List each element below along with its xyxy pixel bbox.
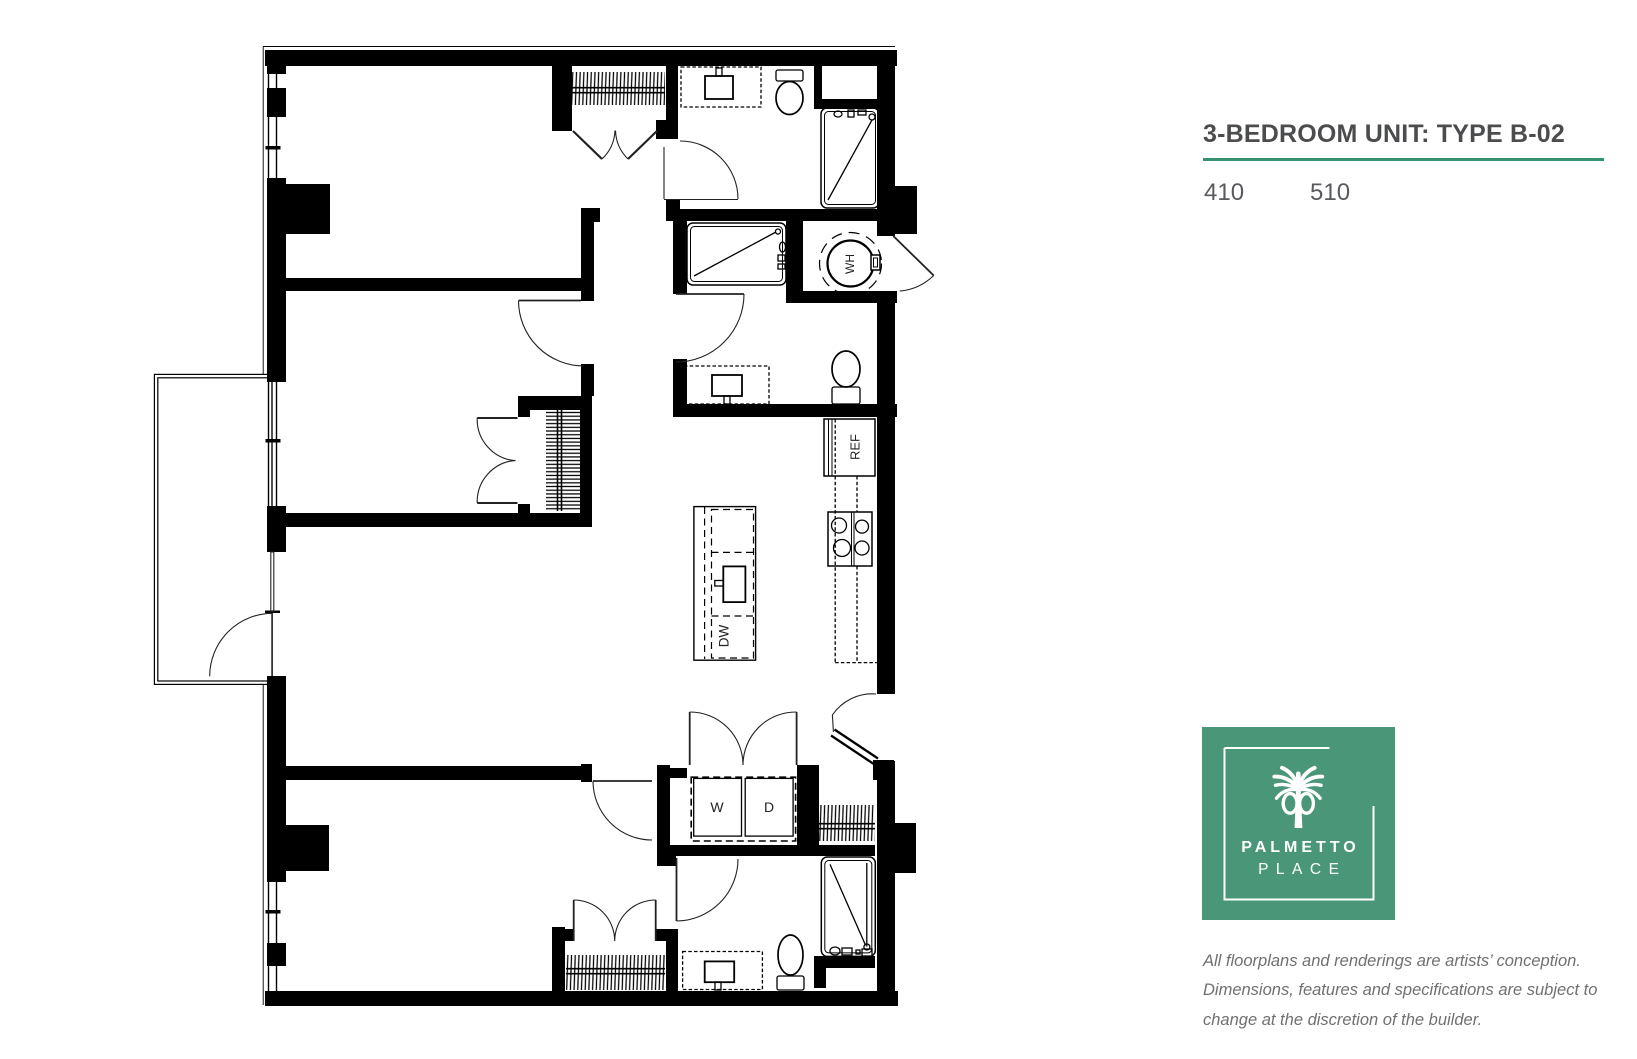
- svg-text:WH: WH: [843, 254, 857, 274]
- svg-text:W: W: [710, 799, 724, 815]
- svg-text:REF: REF: [848, 434, 863, 460]
- svg-text:DW: DW: [717, 625, 732, 648]
- svg-text:D: D: [764, 799, 774, 815]
